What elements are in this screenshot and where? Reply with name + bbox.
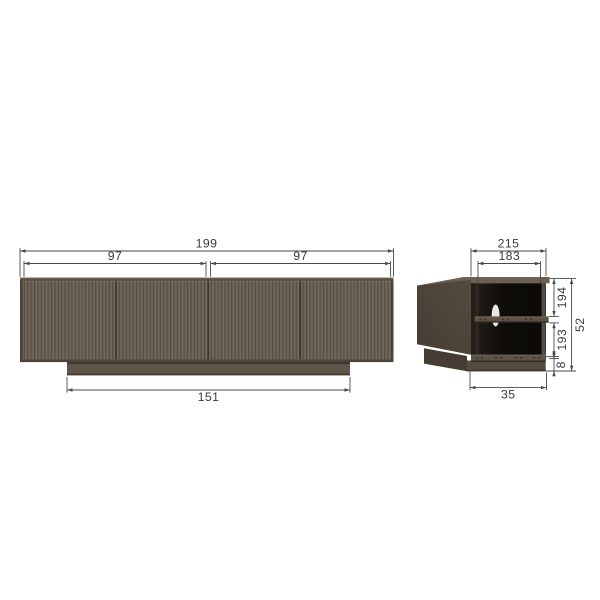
dim-plinth-width: 151 (67, 377, 350, 404)
side-shelf-shadow (475, 321, 549, 322)
side-plinth-bottom-edge (467, 370, 546, 371)
dim-right-section-label: 97 (293, 249, 307, 263)
dim-plinth-depth-label: 35 (501, 388, 515, 402)
front-top-edge-highlight (20, 278, 394, 279)
side-plinth-front (467, 361, 546, 372)
side-plinth-top-shadow (471, 361, 546, 362)
front-view: 199 97 97 151 (20, 237, 394, 404)
front-right-edge (391, 281, 394, 359)
technical-drawing: 199 97 97 151 (0, 0, 600, 600)
front-left-edge (20, 281, 23, 359)
front-doors (20, 281, 394, 359)
dim-left-section-label: 97 (108, 249, 122, 263)
dim-right-section: 97 (211, 249, 391, 277)
side-panel (417, 280, 471, 355)
dim-lower-inner-height-label: 193 (555, 329, 569, 351)
side-view: 215 183 194 193 (417, 237, 587, 402)
front-plinth-shadow (67, 362, 350, 364)
dim-left-section: 97 (24, 249, 206, 277)
cable-hole (492, 305, 500, 327)
side-bottom-rail-top-line (471, 355, 546, 356)
side-shelf-top-line (475, 316, 549, 317)
front-plinth-bottom-edge (67, 374, 350, 376)
dim-plinth-height-label: 8 (554, 361, 568, 368)
dim-inner-depth-label: 183 (498, 249, 520, 263)
dim-lower-inner-height: 193 (546, 323, 569, 357)
dim-upper-inner-height-label: 194 (555, 287, 569, 309)
drawing-canvas: 199 97 97 151 (0, 0, 600, 600)
dim-total-width: 199 (20, 237, 394, 277)
dim-total-width-label: 199 (196, 237, 218, 251)
dim-overall-height-label: 52 (573, 318, 587, 332)
front-bottom-edge (20, 359, 394, 362)
dim-plinth-width-label: 151 (198, 390, 220, 404)
